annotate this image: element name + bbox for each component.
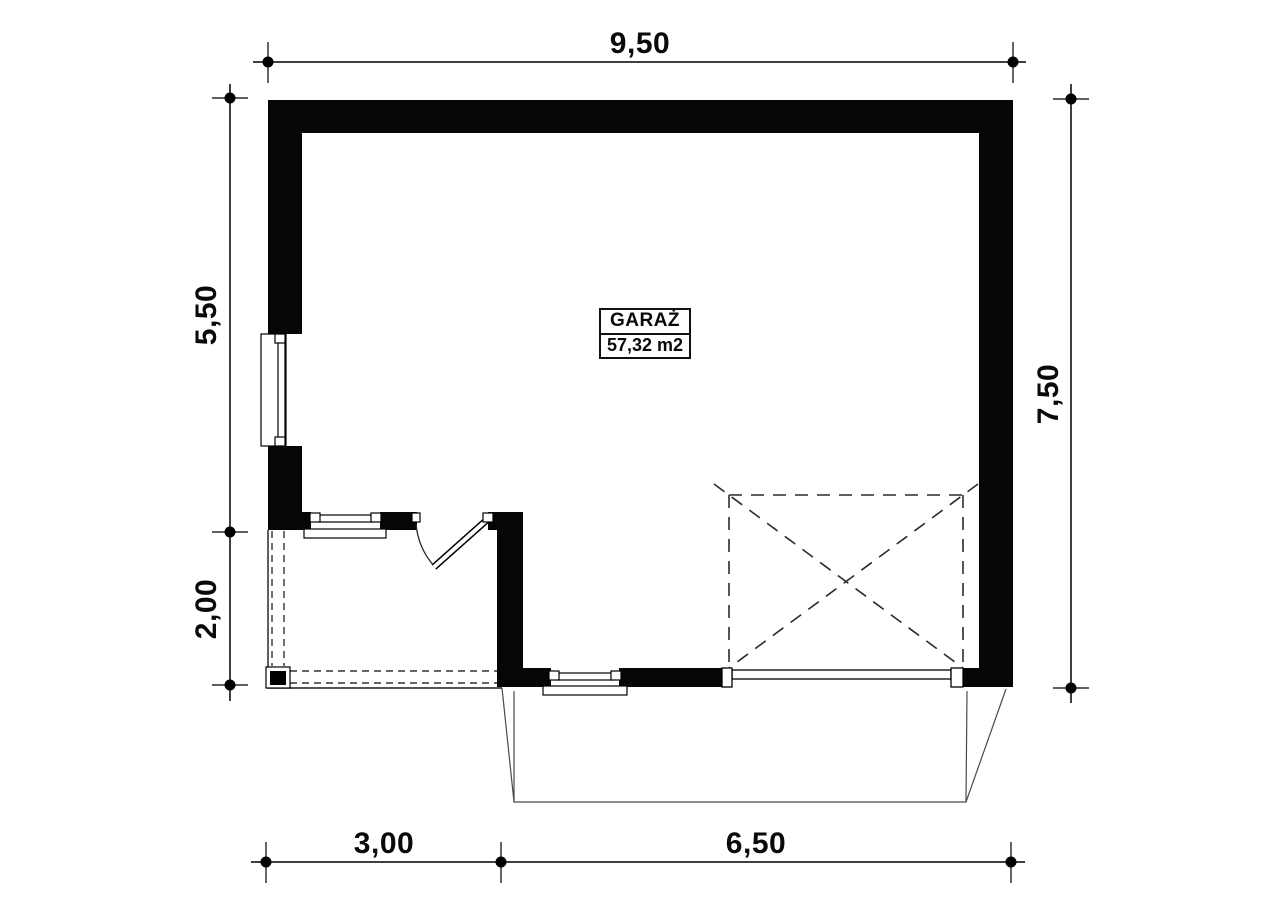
- garage-door: [722, 668, 963, 687]
- room-area: 57,32 m2: [601, 335, 689, 357]
- dimension-lines: [212, 42, 1089, 883]
- dim-label-bottom-left: 3,00: [329, 829, 439, 859]
- overhead-door-outline: [714, 484, 978, 668]
- dim-label-left-upper: 5,50: [192, 260, 222, 370]
- room-label-box: GARAŻ 57,32 m2: [599, 308, 691, 359]
- floorplan-canvas: 9,50 5,50 2,00 7,50 3,00 6,50 GARAŻ 57,3…: [0, 0, 1280, 905]
- dim-label-top: 9,50: [585, 29, 695, 59]
- porch-canopy-dashed: [266, 530, 502, 688]
- window-left: [261, 334, 286, 446]
- dim-label-bottom-right: 6,50: [701, 829, 811, 859]
- door-swing-arc: [416, 524, 434, 566]
- dim-label-left-lower: 2,00: [192, 554, 222, 664]
- window-top: [304, 513, 386, 538]
- garage-door-leaf: [732, 670, 951, 679]
- driveway-apron: [502, 688, 1006, 802]
- window-bottom: [543, 671, 627, 695]
- walls: [268, 100, 1013, 687]
- dim-label-right: 7,50: [1034, 339, 1064, 449]
- floorplan-svg: [0, 0, 1280, 905]
- room-name: GARAŻ: [601, 310, 689, 335]
- entry-door: [412, 513, 493, 567]
